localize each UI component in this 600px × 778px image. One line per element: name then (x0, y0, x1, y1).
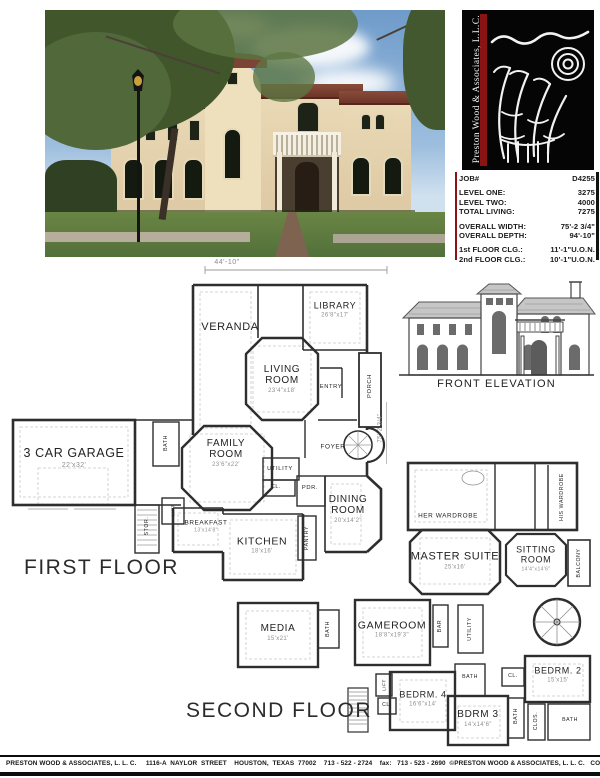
sidewalk (333, 234, 445, 243)
front-elevation-label: FRONT ELEVATION (393, 378, 600, 390)
arched-window (351, 156, 371, 196)
level-one-row: LEVEL ONE: 3275 (459, 188, 595, 197)
room-name: BREAKFAST (184, 520, 227, 527)
room-dim: 15'x21' (261, 636, 296, 642)
hedge (45, 160, 117, 212)
room-label-utility2: UTILITY (467, 617, 473, 641)
room-label-bath-br: BATH (562, 718, 578, 724)
job-label: JOB# (459, 174, 479, 183)
vertical-dimension-line (386, 402, 387, 464)
room-name: PANTRY (304, 526, 310, 550)
front-elevation: FRONT ELEVATION (393, 278, 600, 396)
job-number-row: JOB# D4255 (459, 174, 595, 183)
room-name: LIBRARY (314, 301, 357, 311)
room-label-living: LIVING ROOM23'4"x18' (260, 365, 304, 395)
room-name: STOR. (144, 517, 150, 536)
footer-address-line: PRESTON WOOD & ASSOCIATES, L. L. C. 1116… (6, 760, 598, 767)
room-label-bath-mid: BATH (462, 675, 478, 681)
room-dim: 15'x15' (534, 677, 581, 683)
job-value: 7275 (578, 207, 595, 216)
job-label: LEVEL TWO: (459, 198, 507, 207)
porch-column (277, 152, 282, 212)
jobinfo-right-rule (596, 172, 599, 260)
room-name: BATH (513, 708, 519, 724)
room-label-his-wardrobe: HIS WARDROBE (559, 473, 565, 521)
arched-window (183, 158, 204, 200)
room-name: BEDRM. 2 (534, 666, 581, 676)
balcony-door (297, 102, 319, 132)
total-living-row: TOTAL LIVING: 7275 (459, 207, 595, 216)
room-name: MASTER SUITE (411, 551, 500, 563)
vertical-dimension-label: 75'-2 3/4" (378, 413, 384, 442)
footer-rule (0, 772, 600, 776)
room-name: BDRM 3 (457, 710, 498, 721)
room-label-master: MASTER SUITE25'x16' (411, 551, 500, 570)
room-label-sitting: SITTING ROOM14'4"x14'6" (512, 545, 560, 572)
room-name: FAMILY ROOM (202, 439, 250, 461)
room-dim: 18'x16' (237, 549, 287, 555)
room-name: VERANDA (201, 322, 258, 334)
room-name: FOYER (320, 445, 345, 452)
room-dim: 26'8"x17' (314, 312, 357, 318)
job-value: 3275 (578, 188, 595, 197)
job-value: 94'-10" (569, 231, 595, 240)
room-label-kitchen: KITCHEN18'x16' (237, 537, 287, 556)
front-door (295, 162, 319, 212)
room-dim: 14'x14'6" (457, 722, 498, 728)
job-value: 75'-2 3/4" (561, 222, 595, 231)
job-label: 2nd FLOOR CLG.: (459, 255, 525, 264)
jobinfo-left-rule (455, 172, 457, 260)
room-name: CL. (271, 485, 281, 491)
foliage (253, 52, 315, 102)
footer-rule (0, 755, 600, 757)
room-name: SITTING ROOM (512, 545, 560, 564)
room-label-bdrm3: BDRM 314'x14'6" (457, 710, 498, 728)
room-label-bath3: BATH (513, 708, 519, 724)
corinthian-capital-icon (488, 16, 592, 164)
dimension-line (205, 266, 387, 274)
room-dim: 18'8"x19'3" (358, 633, 426, 639)
room-label-pantry: PANTRY (304, 526, 310, 550)
job-value: 4000 (578, 198, 595, 207)
job-value: 10'-1"U.O.N. (550, 255, 595, 264)
room-name: BATH (325, 621, 331, 637)
room-label-lift2: LIFT (382, 679, 387, 691)
window (189, 120, 200, 141)
room-label-clos: CLOS. (533, 712, 539, 731)
job-label: TOTAL LIVING: (459, 207, 515, 216)
room-label-bedrm4: BEDRM. 416'6"x14' (399, 690, 446, 707)
second-floor-title: SECOND FLOOR (186, 699, 372, 723)
room-dim: 14'4"x14'6" (512, 567, 560, 572)
room-name: BEDRM. 4 (399, 690, 446, 700)
room-name: PDR. (302, 485, 318, 491)
room-dim: 16'6"x14' (399, 701, 446, 707)
room-dim: 13'x14'8" (184, 528, 227, 533)
room-dim: 20'x14'2" (326, 518, 370, 524)
room-label-gameroom: GAMEROOM18'8"x19'3" (358, 621, 426, 640)
room-name: GAMEROOM (358, 621, 426, 632)
room-name: 3 CAR GARAGE (24, 447, 125, 461)
room-name: CLOS. (533, 712, 539, 731)
job-label: 1st FLOOR CLG.: (459, 245, 523, 254)
arched-window (361, 114, 371, 130)
room-label-closet: CL. (271, 485, 281, 491)
job-label: OVERALL DEPTH: (459, 231, 527, 240)
level-two-row: LEVEL TWO: 4000 (459, 198, 595, 207)
plan-sheet-page: Preston Wood & Associates, L.L.C. (0, 0, 600, 778)
room-name: HER WARDROBE (418, 514, 478, 521)
first-floor-title: FIRST FLOOR (24, 556, 179, 580)
room-dim: 25'x16' (411, 564, 500, 570)
width-dimension: 44'-10" (214, 259, 239, 266)
room-label-entry: ENTRY (320, 384, 343, 390)
house-photo (45, 10, 445, 257)
room-label-library: LIBRARY26'8"x17' (314, 301, 357, 318)
room-label-foyer: FOYER (320, 445, 345, 452)
second-floor-clg-row: 2nd FLOOR CLG.: 10'-1"U.O.N. (459, 255, 595, 264)
room-label-balcony: BALCONY (576, 549, 582, 578)
room-name: BAR (437, 620, 443, 632)
room-label-porch: PORCH (367, 374, 373, 398)
room-label-family: FAMILY ROOM23'6"x22' (202, 439, 250, 469)
room-name: BALCONY (576, 549, 582, 578)
room-name: UTILITY (267, 466, 293, 472)
room-label-bar: BAR (437, 620, 443, 632)
room-label-storage: STOR. (144, 517, 150, 536)
room-label-bath1: BATH (163, 435, 169, 451)
room-name: LIFT (171, 504, 176, 516)
room-name: KITCHEN (237, 537, 287, 548)
job-info-panel: JOB# D4255 LEVEL ONE: 3275 LEVEL TWO: 40… (459, 174, 595, 264)
lamppost-pole (137, 90, 140, 242)
room-label-her-wardrobe: HER WARDROBE (418, 514, 478, 521)
overall-depth-row: OVERALL DEPTH: 94'-10" (459, 231, 595, 240)
balcony-balustrade (273, 132, 341, 157)
room-name: BATH (462, 675, 478, 681)
job-value: D4255 (572, 174, 595, 183)
job-label: LEVEL ONE: (459, 188, 505, 197)
arched-window (375, 114, 385, 130)
overall-width-row: OVERALL WIDTH: 75'-2 3/4" (459, 222, 595, 231)
room-label-bath-media: BATH (325, 621, 331, 637)
room-label-closet4: CL. (382, 703, 392, 709)
lamppost-glow (134, 76, 142, 86)
room-dim: 22'x32' (24, 461, 125, 469)
turret-window-tall (223, 128, 242, 180)
room-name: LIFT (382, 679, 387, 691)
front-elevation-drawing (393, 278, 600, 378)
room-name: HIS WARDROBE (559, 473, 565, 521)
room-label-bedrm2: BEDRM. 215'x15' (534, 666, 581, 683)
room-label-veranda: VERANDA (201, 322, 258, 334)
arched-window (383, 156, 403, 196)
room-name: LIVING ROOM (260, 365, 304, 387)
first-floor-clg-row: 1st FLOOR CLG.: 11'-1"U.O.N. (459, 245, 595, 254)
job-value: 11'-1"U.O.N. (550, 245, 595, 254)
porch-column (332, 152, 337, 212)
room-name: BATH (163, 435, 169, 451)
room-label-media: MEDIA15'x21' (261, 624, 296, 642)
room-name: CL. (382, 703, 392, 709)
arched-window (123, 158, 144, 200)
room-label-lift1: LIFT (171, 504, 176, 516)
company-logo: Preston Wood & Associates, L.L.C. (462, 10, 594, 170)
room-name: ENTRY (320, 384, 343, 390)
room-label-utility: UTILITY (267, 466, 293, 472)
sidewalk (45, 232, 250, 242)
room-label-closet2: CL. (508, 674, 518, 680)
room-name: CL. (508, 674, 518, 680)
room-name: PORCH (367, 374, 373, 398)
logo-company-name: Preston Wood & Associates, L.L.C. (472, 14, 482, 164)
room-label-garage: 3 CAR GARAGE22'x32' (24, 447, 125, 469)
room-dim: 23'4"x18' (260, 388, 304, 394)
room-label-breakfast: BREAKFAST13'x14'8" (184, 520, 227, 533)
room-name: BATH (562, 718, 578, 724)
room-name: MEDIA (261, 624, 296, 635)
room-name: UTILITY (467, 617, 473, 641)
job-label: OVERALL WIDTH: (459, 222, 526, 231)
room-name: DINING ROOM (326, 495, 370, 517)
room-dim: 23'6"x22' (202, 462, 250, 468)
room-label-dining: DINING ROOM20'x14'2" (326, 495, 370, 525)
room-label-powder: PDR. (302, 485, 318, 491)
